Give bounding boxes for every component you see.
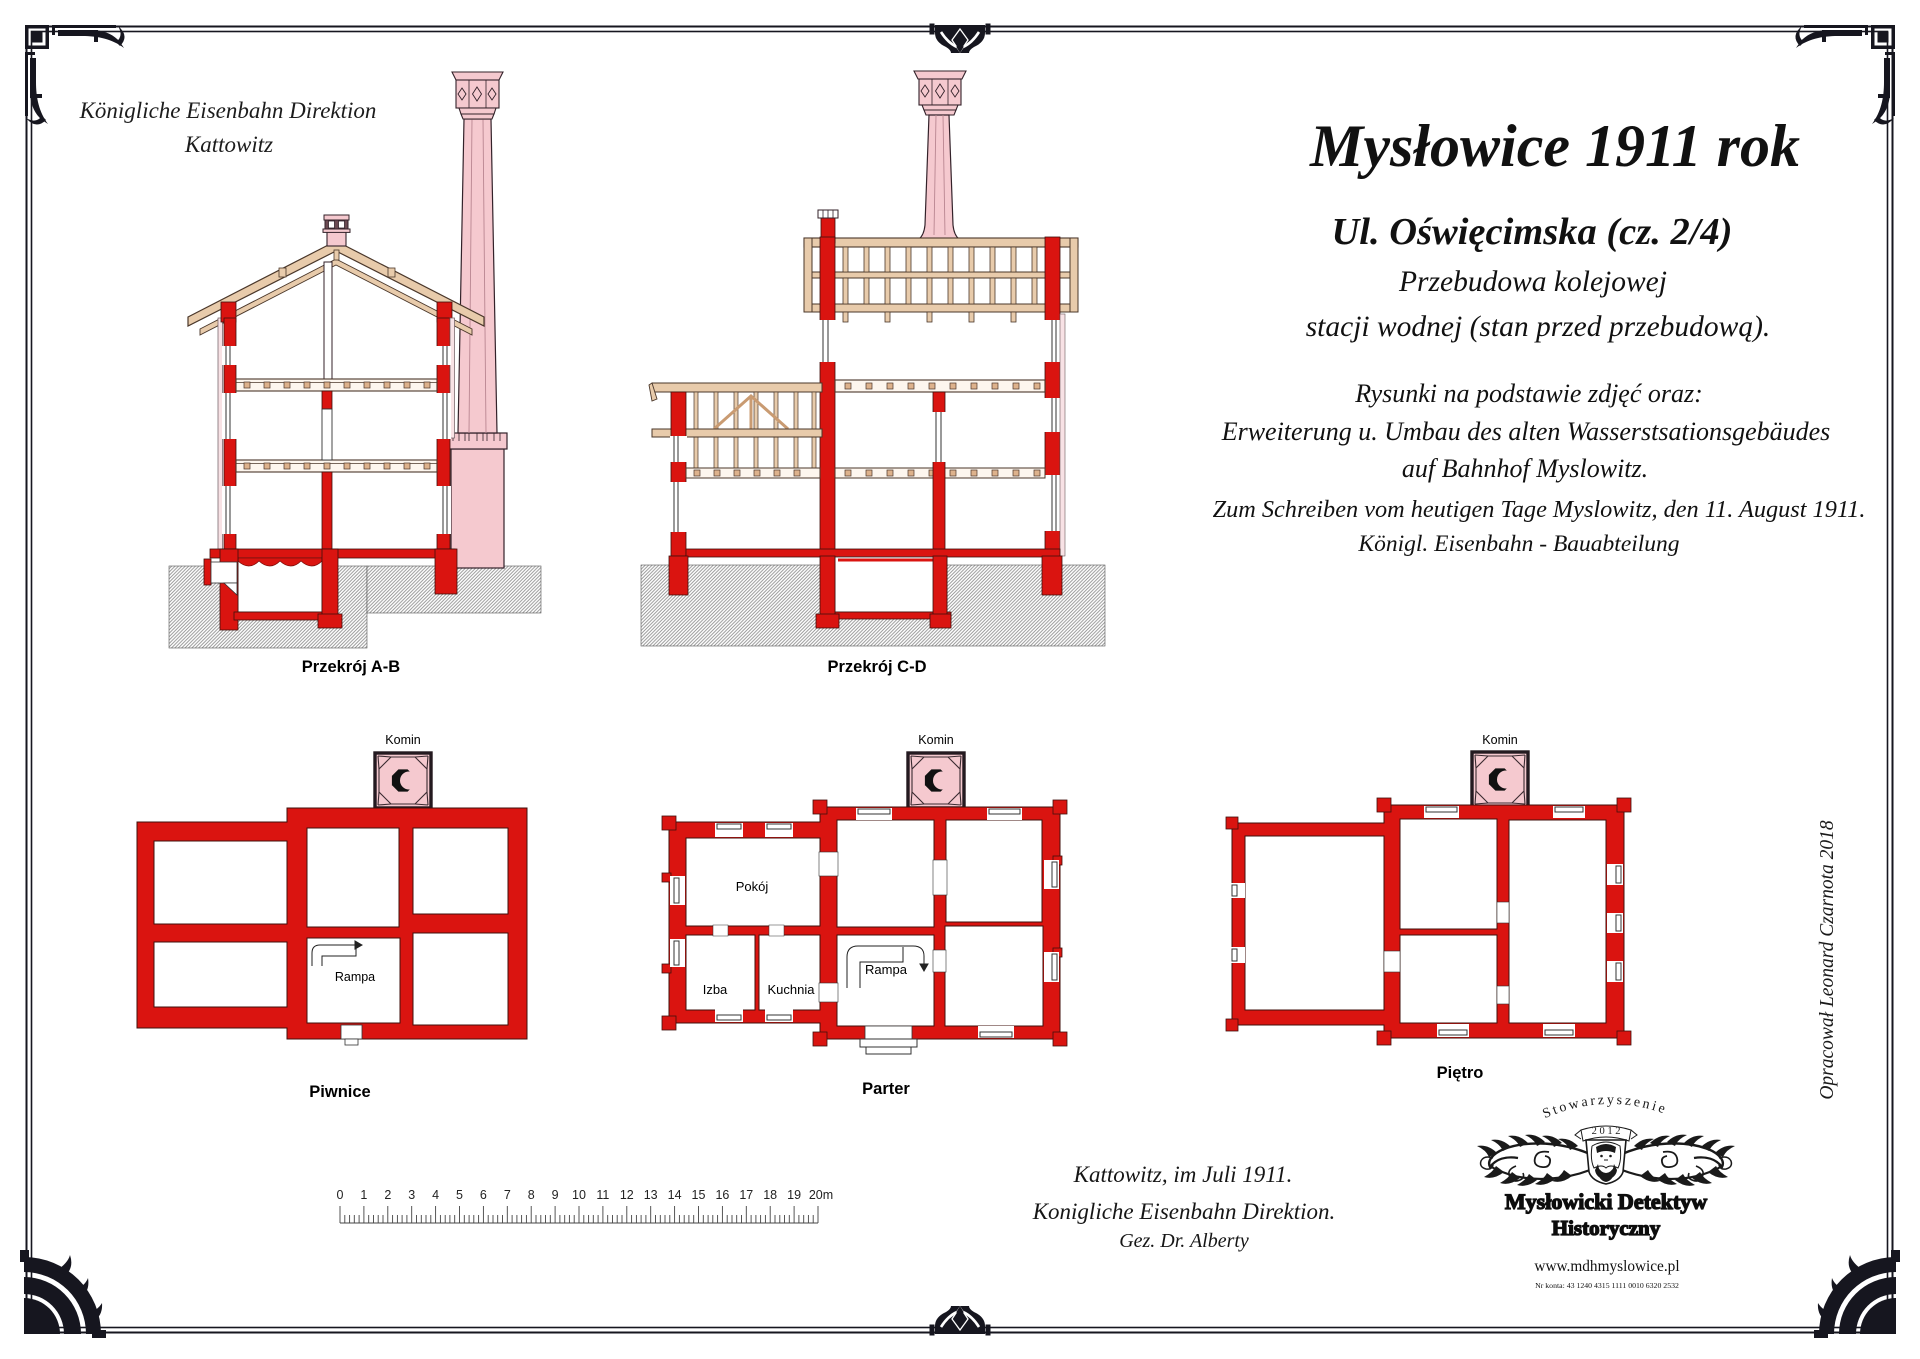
svg-text:11: 11 (596, 1188, 609, 1202)
svg-text:Kattowitz: Kattowitz (184, 132, 273, 157)
svg-text:Königl. Eisenbahn - Bauabteilu: Königl. Eisenbahn - Bauabteilung (1357, 531, 1679, 557)
svg-text:4: 4 (432, 1188, 439, 1202)
svg-text:Nr konta: 43 1240 4315 1111 00: Nr konta: 43 1240 4315 1111 0010 6320 25… (1535, 1281, 1679, 1290)
svg-text:Pokój: Pokój (736, 879, 769, 894)
svg-text:2: 2 (384, 1188, 391, 1202)
svg-text:5: 5 (456, 1188, 463, 1202)
svg-text:Königliche Eisenbahn Direktion: Königliche Eisenbahn Direktion (79, 98, 377, 123)
svg-text:18: 18 (763, 1188, 777, 1202)
svg-text:Komin: Komin (1482, 733, 1517, 747)
svg-text:10: 10 (572, 1188, 586, 1202)
svg-text:Przekrój A-B: Przekrój A-B (302, 658, 400, 676)
svg-text:Mysłowice 1911 rok: Mysłowice 1911 rok (1309, 113, 1800, 179)
svg-text:Konigliche Eisenbahn Direktion: Konigliche Eisenbahn Direktion. (1032, 1199, 1336, 1224)
svg-text:6: 6 (480, 1188, 487, 1202)
svg-text:2 0 1 2: 2 0 1 2 (1592, 1126, 1621, 1137)
svg-text:9: 9 (552, 1188, 559, 1202)
svg-text:www.mdhmyslowice.pl: www.mdhmyslowice.pl (1534, 1258, 1679, 1275)
svg-text:stacji wodnej (stan przed prze: stacji wodnej (stan przed przebudową). (1306, 311, 1771, 343)
svg-text:Kuchnia: Kuchnia (768, 982, 816, 997)
svg-text:Erweiterung u. Umbau des alten: Erweiterung u. Umbau des alten Wassersts… (1221, 417, 1831, 446)
svg-text:14: 14 (668, 1188, 682, 1202)
svg-text:13: 13 (644, 1188, 658, 1202)
svg-text:Przebudowa kolejowej: Przebudowa kolejowej (1398, 266, 1667, 298)
svg-text:Ul. Oświęcimska (cz. 2/4): Ul. Oświęcimska (cz. 2/4) (1332, 211, 1733, 253)
svg-text:20m: 20m (809, 1188, 833, 1202)
svg-text:Komin: Komin (385, 733, 420, 747)
svg-text:Piwnice: Piwnice (309, 1083, 370, 1101)
svg-text:7: 7 (504, 1188, 511, 1202)
svg-text:Rampa: Rampa (865, 962, 908, 977)
svg-text:Parter: Parter (862, 1080, 910, 1098)
svg-text:19: 19 (787, 1188, 801, 1202)
svg-text:12: 12 (620, 1188, 634, 1202)
svg-text:8: 8 (528, 1188, 535, 1202)
svg-text:Przekrój C-D: Przekrój C-D (827, 658, 926, 676)
svg-text:Gez. Dr. Alberty: Gez. Dr. Alberty (1119, 1230, 1249, 1252)
svg-text:auf Bahnhof Myslowitz.: auf Bahnhof Myslowitz. (1402, 454, 1648, 483)
svg-text:Komin: Komin (918, 733, 953, 747)
svg-text:Opracował Leonard Czarnota 201: Opracował Leonard Czarnota 2018 (1817, 820, 1838, 1100)
svg-text:Zum Schreiben vom heutigen Tag: Zum Schreiben vom heutigen Tage Myslowit… (1213, 496, 1866, 523)
svg-text:Kattowitz, im Juli 1911.: Kattowitz, im Juli 1911. (1073, 1162, 1293, 1187)
svg-text:17: 17 (739, 1188, 753, 1202)
svg-text:Mysłowicki Detektyw: Mysłowicki Detektyw (1505, 1189, 1707, 1214)
svg-text:Rampa: Rampa (335, 970, 375, 984)
svg-text:Rysunki na podstawie zdjęć ora: Rysunki na podstawie zdjęć oraz: (1354, 379, 1703, 408)
svg-text:16: 16 (715, 1188, 729, 1202)
svg-text:Piętro: Piętro (1437, 1064, 1484, 1082)
svg-text:0: 0 (337, 1188, 344, 1202)
svg-text:15: 15 (692, 1188, 706, 1202)
svg-text:Historyczny: Historyczny (1552, 1216, 1661, 1240)
svg-text:3: 3 (408, 1188, 415, 1202)
svg-text:Izba: Izba (703, 982, 728, 997)
svg-text:1: 1 (360, 1188, 367, 1202)
